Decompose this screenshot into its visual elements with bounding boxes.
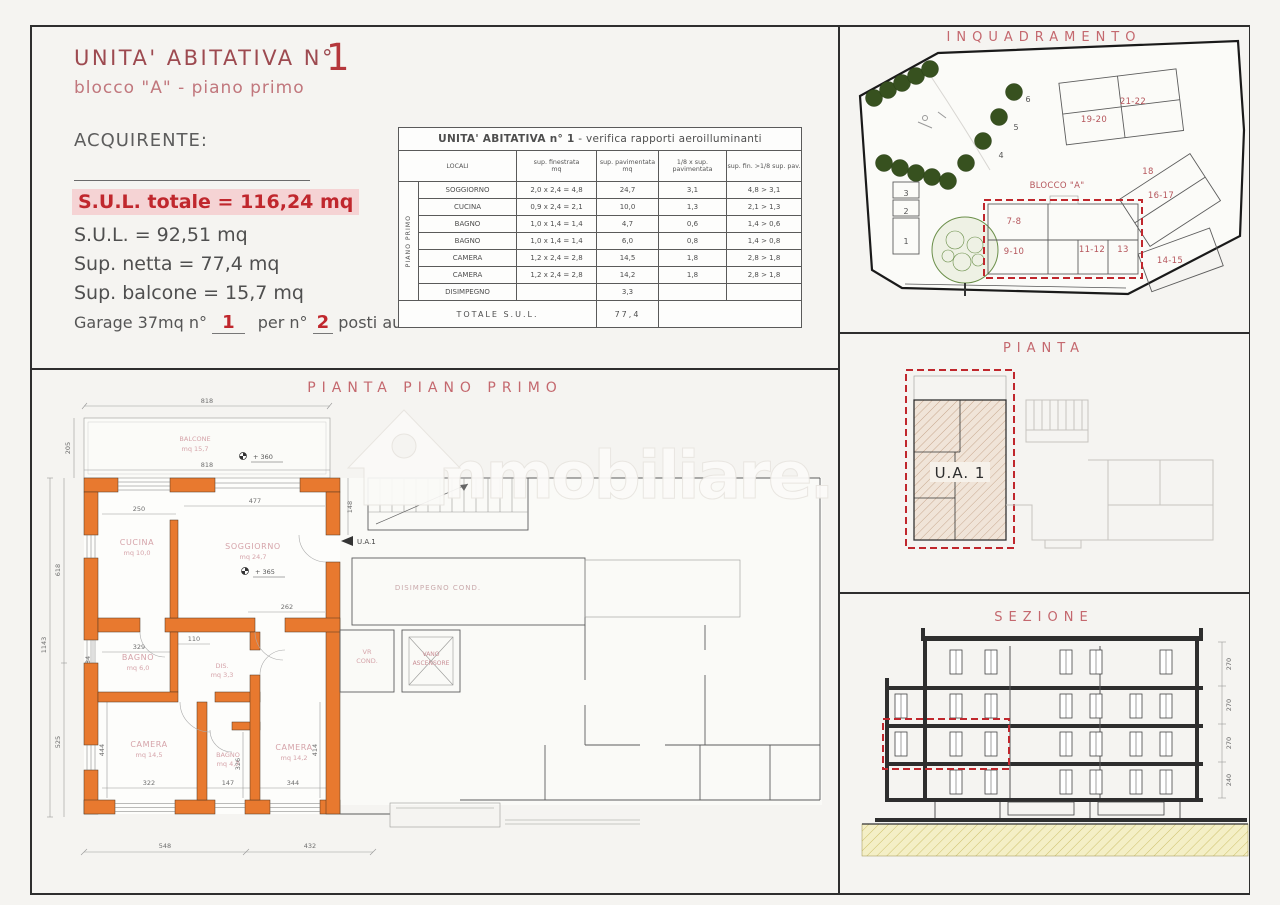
label-vr: VR <box>363 648 372 656</box>
sup-balcone: Sup. balcone = 15,7 mq <box>74 282 304 304</box>
room-soggiorno-mq: mq 24,7 <box>240 553 267 561</box>
garage-posti: 2 <box>313 312 334 334</box>
table-row: CAMERA1,2 x 2,4 = 2,814,21,82,8 > 1,8 <box>399 267 802 284</box>
site-num-3: 3 <box>903 189 908 198</box>
room-dis-mq: mq 3,3 <box>211 671 234 679</box>
blocco-a-label: BLOCCO "A" <box>1030 181 1085 191</box>
section-dims: 270 270 270 240 <box>1218 642 1233 798</box>
plan-backgrounds <box>84 418 822 814</box>
key-unit-label: U.A. 1 <box>935 464 986 482</box>
site-num-5: 5 <box>1013 123 1018 132</box>
col-finestrata: sup. finestrata mq <box>517 151 597 182</box>
room-bagno1-mq: mq 6,0 <box>127 664 150 672</box>
section-windows <box>895 650 1172 794</box>
floor-plan-svg: 818 818 205 618 1143 525 148 414 326 184… <box>31 369 837 903</box>
aero-table-title: UNITA' ABITATIVA n° 1 - verifica rapport… <box>399 128 802 151</box>
garage-number: 1 <box>212 312 245 334</box>
table-row: BAGNO1,0 x 1,4 = 1,44,70,61,4 > 0,6 <box>399 216 802 233</box>
label-ascensore: ASCENSORE <box>413 660 450 667</box>
site-num-4: 4 <box>998 151 1003 160</box>
dim-525: 525 <box>54 736 62 748</box>
room-camera2-mq: mq 14,2 <box>281 754 308 762</box>
aero-table: UNITA' ABITATIVA n° 1 - verifica rapport… <box>398 127 802 328</box>
room-cucina: CUCINA <box>120 538 154 547</box>
dim-322: 322 <box>143 779 155 787</box>
unit-subtitle: blocco "A" - piano primo <box>74 78 305 98</box>
dim-1143: 1143 <box>40 637 48 654</box>
table-row: BAGNO1,0 x 1,4 = 1,46,00,81,4 > 0,8 <box>399 233 802 250</box>
dim-818-top: 818 <box>201 397 213 405</box>
totale-label: TOTALE S.U.L. <box>399 301 597 328</box>
room-balcone: BALCONE <box>179 435 210 443</box>
sul-value: S.U.L. = 92,51 mq <box>74 224 248 246</box>
room-bagno2: BAGNO <box>216 751 240 759</box>
dim-262: 262 <box>281 603 293 611</box>
room-bagno2-mq: mq 4,7 <box>217 760 240 768</box>
label-vr-cond: COND. <box>356 657 378 665</box>
label-disimpegno-cond: DISIMPEGNO COND. <box>395 584 481 592</box>
acquirente-label: ACQUIRENTE: <box>74 130 208 151</box>
level-balcone: + 360 <box>253 453 273 461</box>
level-soggiorno: + 365 <box>255 568 275 576</box>
site-num-6: 6 <box>1025 95 1030 104</box>
dim-818-2: 818 <box>201 461 213 469</box>
acquirente-line <box>74 180 310 181</box>
col-locali: LOCALI <box>399 151 517 182</box>
col-pavimentata: sup. pavimentata mq <box>597 151 659 182</box>
page-title: UNITA' ABITATIVA N° <box>74 46 335 70</box>
sezione-svg: 270 270 270 240 <box>839 592 1249 894</box>
dim-477: 477 <box>249 497 261 505</box>
label-21-22: 21-22 <box>1120 97 1146 107</box>
dim-432: 432 <box>304 842 316 850</box>
side-label: PIANO PRIMO <box>399 182 419 301</box>
dim-110: 110 <box>188 635 200 643</box>
garage-mid: per n° <box>258 313 308 332</box>
room-balcone-mq: mq 15,7 <box>182 445 209 453</box>
inquadramento-svg: BLOCCO "A" 7-8 9-10 11-12 13 14-15 16-17… <box>839 26 1249 332</box>
col-verifica: sup. fin. >1/8 sup. pav. <box>727 151 802 182</box>
section-ground <box>862 824 1248 856</box>
label-19-20: 19-20 <box>1081 115 1107 125</box>
key-plan-rest <box>1006 400 1213 548</box>
site-num-2: 2 <box>903 207 908 216</box>
sez-dim-2: 270 <box>1225 699 1233 711</box>
label-18: 18 <box>1142 167 1153 177</box>
dim-618: 618 <box>54 564 62 576</box>
sul-totale: S.U.L. totale = 116,24 mq <box>72 189 359 215</box>
ua-label: U.A.1 <box>357 538 376 546</box>
table-row: CUCINA0,9 x 2,4 = 2,110,01,32,1 > 1,3 <box>399 199 802 216</box>
sez-dim-3: 270 <box>1225 737 1233 749</box>
dim-147: 147 <box>222 779 234 787</box>
table-row: DISIMPEGNO3,3 <box>399 284 802 301</box>
sup-netta: Sup. netta = 77,4 mq <box>74 253 279 275</box>
dim-250: 250 <box>133 505 145 513</box>
label-16-17: 16-17 <box>1148 191 1174 201</box>
sez-dim-1: 270 <box>1225 658 1233 670</box>
room-bagno1: BAGNO <box>122 653 154 662</box>
room-cucina-mq: mq 10,0 <box>124 549 151 557</box>
room-soggiorno: SOGGIORNO <box>225 542 281 551</box>
room-camera1-mq: mq 14,5 <box>136 751 163 759</box>
key-plan-unit: U.A. 1 <box>906 370 1014 548</box>
totale-value: 77,4 <box>597 301 659 328</box>
sez-dim-4: 240 <box>1225 774 1233 786</box>
site-num-1: 1 <box>903 237 908 246</box>
drawing-sheet: UNITA' ABITATIVA N° 1 blocco "A" - piano… <box>0 0 1280 905</box>
table-row: CAMERA1,2 x 2,4 = 2,814,51,82,8 > 1,8 <box>399 250 802 267</box>
room-camera2: CAMERA <box>275 743 312 752</box>
label-13: 13 <box>1117 245 1128 255</box>
table-row: PIANO PRIMO SOGGIORNO2,0 x 2,4 = 4,824,7… <box>399 182 802 199</box>
room-camera1: CAMERA <box>130 740 167 749</box>
label-9-10: 9-10 <box>1004 247 1025 257</box>
dim-344: 344 <box>287 779 299 787</box>
garage-line: Garage 37mq n° 1 per n° 2 posti auto <box>74 312 418 333</box>
unit-number: 1 <box>326 36 350 79</box>
dim-548: 548 <box>159 842 171 850</box>
label-vano: VANO <box>422 651 439 658</box>
col-ottavo: 1/8 x sup. pavimentata <box>659 151 727 182</box>
pianta-svg: U.A. 1 <box>839 332 1249 592</box>
dim-148: 148 <box>346 501 354 513</box>
label-7-8: 7-8 <box>1007 217 1022 227</box>
unit-title-text: UNITA' ABITATIVA N° <box>74 46 335 70</box>
table-total-row: TOTALE S.U.L. 77,4 <box>399 301 802 328</box>
garage-prefix: Garage 37mq n° <box>74 313 207 332</box>
label-11-12: 11-12 <box>1079 245 1105 255</box>
room-dis: DIS. <box>215 662 228 670</box>
dim-444: 444 <box>98 744 106 756</box>
label-14-15: 14-15 <box>1157 256 1183 266</box>
dim-205: 205 <box>64 442 72 454</box>
